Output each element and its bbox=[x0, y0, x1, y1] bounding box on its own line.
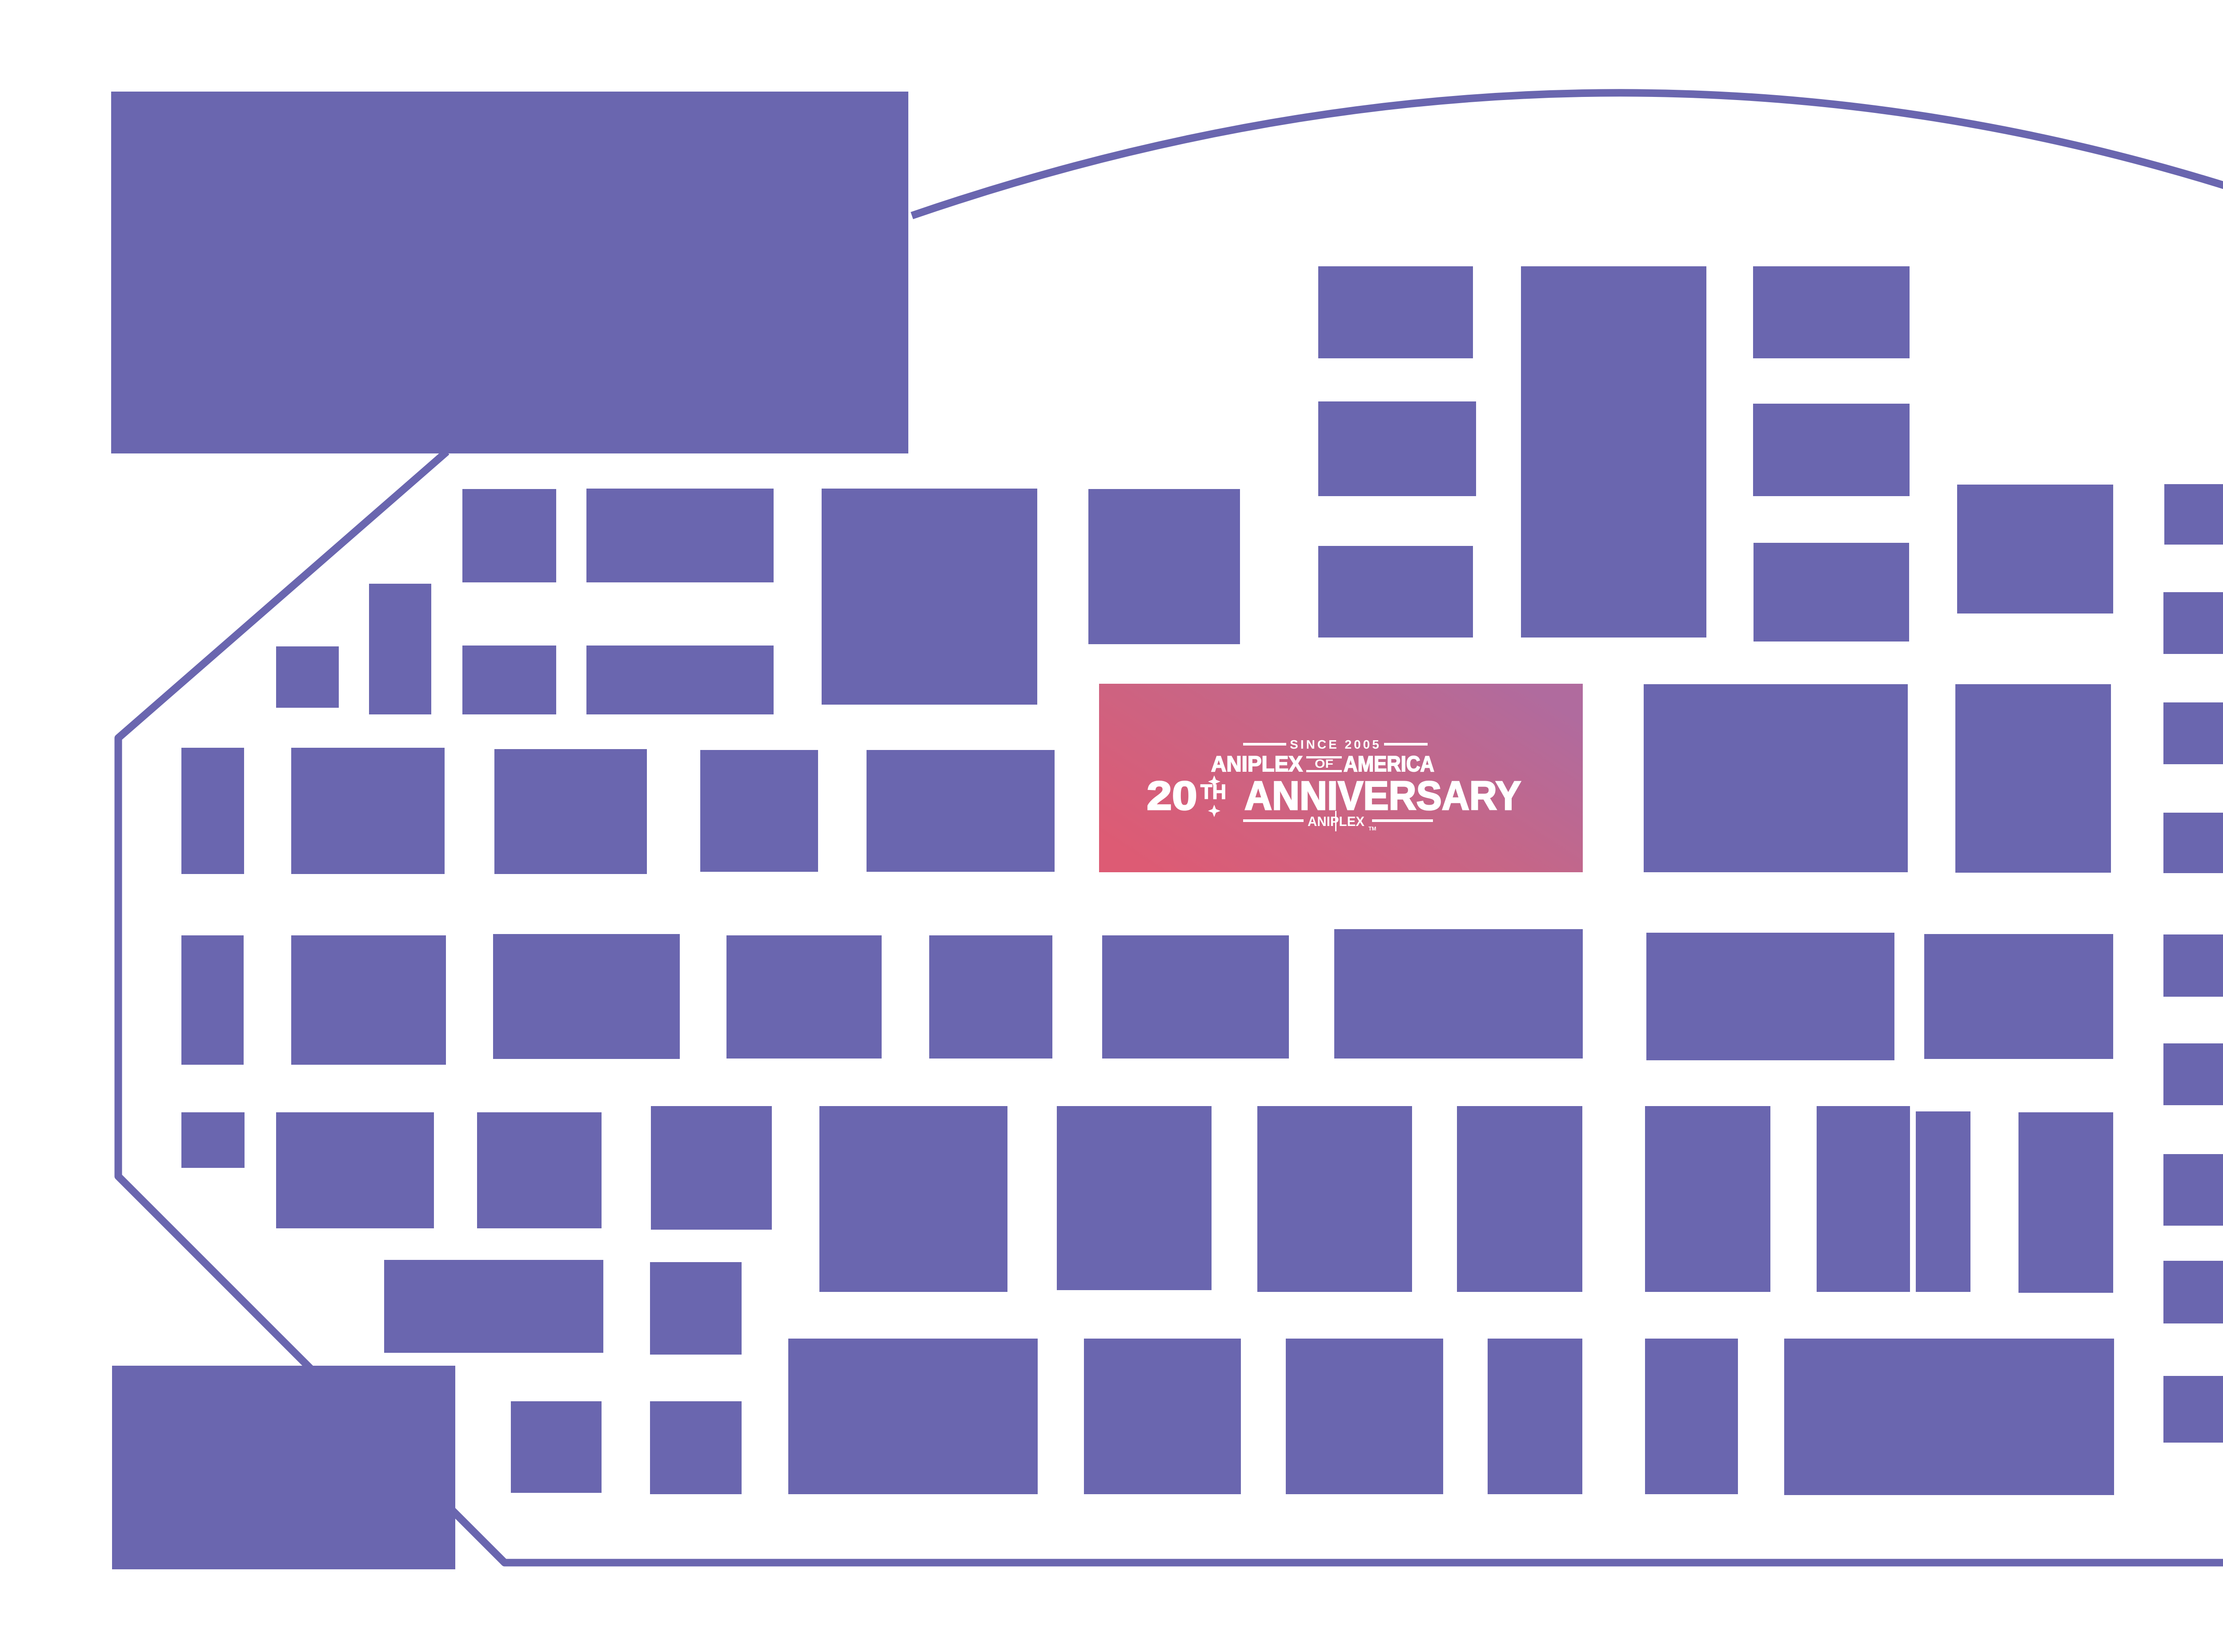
svg-text:ANIPLEX: ANIPLEX bbox=[1211, 752, 1303, 776]
svg-text:20: 20 bbox=[1147, 774, 1197, 818]
svg-text:AMERICA: AMERICA bbox=[1344, 752, 1434, 776]
svg-text:TM: TM bbox=[1368, 826, 1376, 832]
svg-text:SINCE 2005: SINCE 2005 bbox=[1290, 738, 1381, 751]
svg-text:OF: OF bbox=[1315, 757, 1333, 770]
svg-text:ANNIVERSARY: ANNIVERSARY bbox=[1244, 774, 1521, 818]
